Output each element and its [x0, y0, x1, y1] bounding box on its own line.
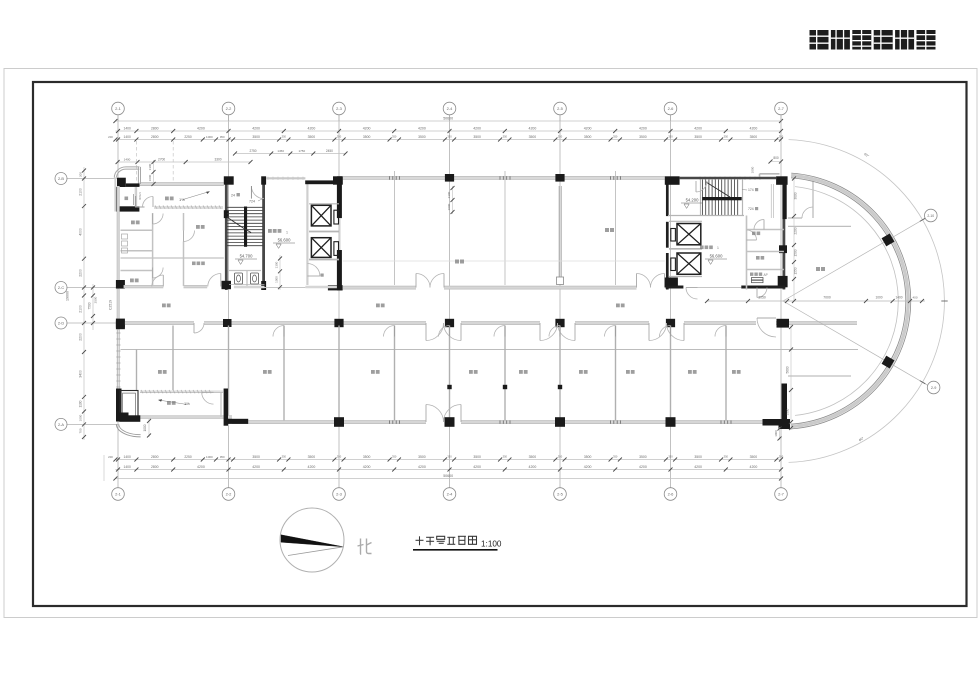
svg-text:1100: 1100: [79, 400, 83, 407]
svg-text:3500: 3500: [639, 455, 647, 459]
svg-text:1%: 1%: [179, 197, 185, 202]
svg-text:350: 350: [447, 135, 452, 139]
svg-text:4200: 4200: [308, 126, 316, 130]
svg-text:2-C: 2-C: [58, 285, 64, 290]
svg-text:700: 700: [79, 428, 83, 433]
svg-text:1000: 1000: [751, 166, 755, 173]
svg-text:2100: 2100: [79, 305, 83, 313]
svg-text:1: 1: [717, 246, 719, 250]
svg-text:2500: 2500: [94, 296, 98, 303]
svg-text:350: 350: [503, 455, 508, 459]
svg-text:3500: 3500: [694, 455, 702, 459]
svg-text:350: 350: [724, 135, 729, 139]
svg-text:4200: 4200: [197, 465, 205, 469]
svg-text:2-1: 2-1: [115, 106, 122, 111]
svg-text:24: 24: [231, 194, 235, 198]
svg-text:4200: 4200: [418, 465, 426, 469]
svg-text:3500: 3500: [529, 455, 537, 459]
svg-text:2-A: 2-A: [58, 422, 64, 427]
svg-text:1:100: 1:100: [481, 539, 502, 548]
svg-text:1: 1: [286, 231, 288, 235]
svg-text:1400: 1400: [124, 465, 132, 469]
svg-text:2100: 2100: [79, 188, 83, 196]
svg-text:2-2: 2-2: [226, 106, 233, 111]
svg-text:3500: 3500: [363, 455, 371, 459]
svg-text:3500: 3500: [584, 455, 592, 459]
svg-text:2200: 2200: [79, 333, 83, 341]
svg-text:2-3: 2-3: [336, 106, 343, 111]
svg-text:4200: 4200: [473, 465, 481, 469]
svg-text:4200: 4200: [750, 465, 758, 469]
svg-text:1000: 1000: [275, 276, 279, 283]
svg-text:2-D: 2-D: [58, 321, 64, 326]
svg-text:2450: 2450: [326, 149, 333, 153]
svg-text:4200: 4200: [252, 465, 260, 469]
svg-text:3500: 3500: [584, 135, 592, 139]
svg-text:4200: 4200: [418, 126, 426, 130]
svg-text:1300: 1300: [148, 163, 152, 170]
svg-text:350: 350: [613, 455, 618, 459]
svg-text:1300: 1300: [447, 191, 451, 198]
svg-text:50600: 50600: [443, 116, 453, 120]
svg-text:2800: 2800: [151, 135, 159, 139]
svg-text:350: 350: [282, 135, 287, 139]
svg-text:2200: 2200: [79, 269, 83, 277]
svg-text:7000: 7000: [823, 296, 831, 300]
svg-text:1000: 1000: [79, 414, 83, 421]
svg-text:4200: 4200: [363, 465, 371, 469]
svg-text:2800: 2800: [151, 455, 159, 459]
svg-text:2-2: 2-2: [226, 492, 233, 497]
svg-text:4200: 4200: [529, 465, 537, 469]
svg-text:350: 350: [337, 455, 342, 459]
svg-text:4200: 4200: [529, 126, 537, 130]
svg-text:2-4: 2-4: [447, 492, 454, 497]
svg-text:3500: 3500: [750, 135, 758, 139]
svg-text:3300: 3300: [214, 158, 221, 162]
svg-text:2-5: 2-5: [557, 492, 564, 497]
svg-text:2700: 2700: [158, 158, 165, 162]
svg-text:2-7: 2-7: [778, 492, 785, 497]
svg-text:4200: 4200: [750, 126, 758, 130]
svg-text:3050: 3050: [758, 296, 766, 300]
svg-text:4200: 4200: [308, 465, 316, 469]
svg-text:4200: 4200: [252, 126, 260, 130]
svg-text:54.200: 54.200: [686, 198, 699, 203]
svg-text:350: 350: [503, 135, 508, 139]
svg-text:950: 950: [220, 135, 225, 139]
svg-text:2200: 2200: [794, 227, 798, 234]
svg-text:350: 350: [392, 135, 397, 139]
svg-text:3400: 3400: [79, 370, 83, 378]
svg-text:AP: AP: [764, 273, 768, 277]
svg-text:3500: 3500: [418, 455, 426, 459]
svg-text:2-7: 2-7: [778, 106, 785, 111]
svg-text:2800: 2800: [151, 465, 159, 469]
svg-text:350: 350: [613, 135, 618, 139]
svg-text:3500: 3500: [639, 135, 647, 139]
svg-text:3500: 3500: [308, 455, 316, 459]
svg-text:350: 350: [558, 135, 563, 139]
svg-text:724: 724: [249, 200, 255, 204]
svg-text:1400: 1400: [124, 135, 132, 139]
svg-text:7500: 7500: [88, 302, 92, 309]
svg-text:4200: 4200: [584, 126, 592, 130]
svg-text:3500: 3500: [252, 135, 260, 139]
svg-text:1000: 1000: [148, 174, 152, 181]
svg-text:200: 200: [108, 455, 113, 459]
svg-text:1000: 1000: [143, 424, 147, 431]
svg-text:1000: 1000: [206, 135, 213, 139]
svg-text:4200: 4200: [584, 465, 592, 469]
svg-text:56.600: 56.600: [710, 254, 723, 259]
svg-text:2250: 2250: [184, 135, 192, 139]
svg-text:1500: 1500: [786, 408, 790, 415]
svg-text:350: 350: [282, 455, 287, 459]
svg-text:3000: 3000: [794, 192, 798, 199]
svg-text:1400: 1400: [124, 126, 132, 130]
svg-text:1500: 1500: [794, 249, 798, 256]
svg-text:2800: 2800: [151, 126, 159, 130]
svg-text:724: 724: [748, 207, 754, 211]
svg-text:400: 400: [912, 296, 917, 300]
svg-text:950: 950: [220, 455, 225, 459]
svg-text:350: 350: [668, 455, 673, 459]
svg-text:200: 200: [108, 135, 113, 139]
svg-text:4200: 4200: [363, 126, 371, 130]
svg-text:2-9: 2-9: [931, 386, 937, 390]
svg-text:3500: 3500: [308, 135, 316, 139]
svg-text:1750: 1750: [298, 149, 305, 153]
svg-text:1000: 1000: [206, 455, 213, 459]
svg-text:4200: 4200: [639, 465, 647, 469]
svg-text:2750: 2750: [249, 149, 256, 153]
svg-text:1450: 1450: [277, 149, 284, 153]
svg-text:3500: 3500: [418, 135, 426, 139]
svg-text:2-5: 2-5: [557, 106, 564, 111]
svg-text:4200: 4200: [639, 126, 647, 130]
svg-text:350: 350: [392, 455, 397, 459]
svg-text:19000: 19000: [66, 291, 70, 301]
svg-text:1%: 1%: [184, 401, 190, 406]
svg-text:M0921: M0921: [138, 191, 142, 199]
svg-text:2-6: 2-6: [668, 492, 675, 497]
svg-text:800: 800: [773, 156, 779, 160]
svg-text:4200: 4200: [473, 126, 481, 130]
svg-text:4200: 4200: [694, 465, 702, 469]
svg-text:2250: 2250: [184, 455, 192, 459]
svg-text:1400: 1400: [895, 296, 902, 300]
svg-text:1400: 1400: [124, 158, 131, 162]
svg-text:2-B: 2-B: [58, 176, 64, 181]
svg-text:3500: 3500: [473, 455, 481, 459]
svg-text:4000: 4000: [79, 228, 83, 236]
svg-text:2-10: 2-10: [927, 214, 934, 218]
svg-text:C2519: C2519: [109, 300, 113, 310]
svg-text:4200: 4200: [197, 126, 205, 130]
svg-text:3500: 3500: [473, 135, 481, 139]
svg-text:350: 350: [724, 455, 729, 459]
svg-text:350: 350: [668, 135, 673, 139]
svg-text:2-1: 2-1: [115, 492, 122, 497]
svg-text:1550: 1550: [794, 267, 798, 274]
svg-text:56.600: 56.600: [278, 238, 291, 243]
svg-text:3500: 3500: [750, 455, 758, 459]
svg-text:2-6: 2-6: [668, 106, 675, 111]
svg-text:54.700: 54.700: [240, 254, 253, 259]
svg-text:1000: 1000: [447, 203, 451, 210]
svg-text:50600: 50600: [443, 474, 453, 478]
svg-text:5600: 5600: [786, 366, 790, 373]
svg-text:2-3: 2-3: [336, 492, 343, 497]
svg-text:1000: 1000: [774, 430, 778, 437]
svg-text:1400: 1400: [124, 455, 132, 459]
svg-text:2-4: 2-4: [447, 106, 454, 111]
svg-text:3500: 3500: [529, 135, 537, 139]
svg-text:350: 350: [558, 455, 563, 459]
svg-text:350: 350: [447, 455, 452, 459]
svg-text:1000: 1000: [875, 296, 882, 300]
svg-text:200: 200: [79, 172, 83, 177]
svg-text:350: 350: [337, 135, 342, 139]
svg-text:1300: 1300: [275, 261, 279, 268]
svg-text:4200: 4200: [694, 126, 702, 130]
svg-text:3500: 3500: [363, 135, 371, 139]
svg-text:174: 174: [748, 188, 754, 192]
svg-text:3500: 3500: [694, 135, 702, 139]
svg-text:3500: 3500: [252, 455, 260, 459]
